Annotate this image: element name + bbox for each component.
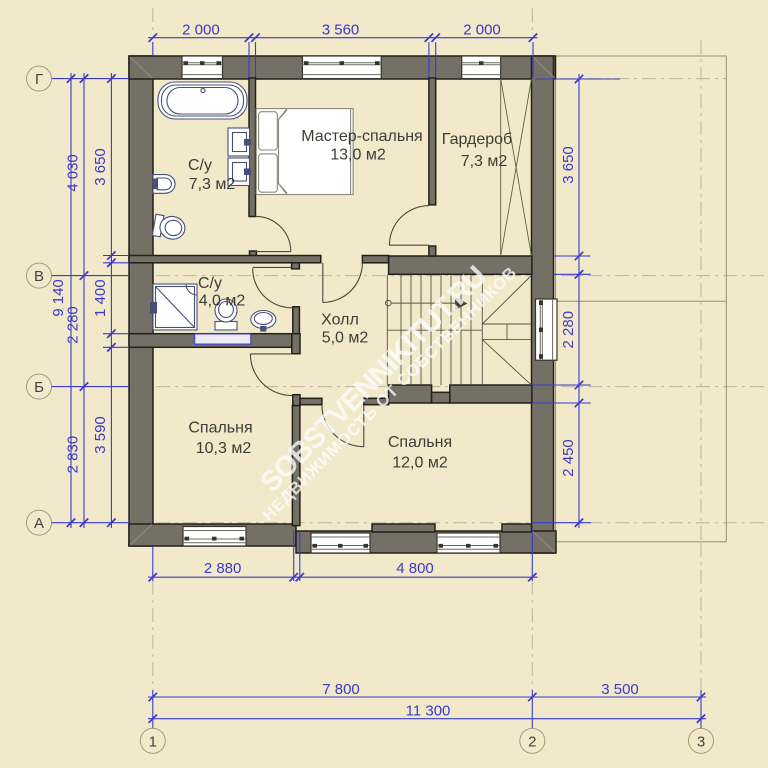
svg-text:1: 1 bbox=[149, 733, 157, 750]
svg-text:3 560: 3 560 bbox=[322, 22, 360, 39]
svg-text:Гардероб: Гардероб bbox=[442, 131, 512, 148]
svg-text:2 280: 2 280 bbox=[65, 306, 82, 344]
svg-text:2 000: 2 000 bbox=[463, 22, 501, 39]
svg-text:2 000: 2 000 bbox=[182, 22, 220, 39]
svg-text:4,0 м2: 4,0 м2 bbox=[199, 293, 246, 310]
svg-text:7,3 м2: 7,3 м2 bbox=[189, 176, 236, 193]
svg-text:13,0 м2: 13,0 м2 bbox=[330, 147, 386, 164]
svg-text:Холл: Холл bbox=[321, 312, 359, 329]
svg-text:3 650: 3 650 bbox=[92, 148, 109, 186]
svg-text:С/у: С/у bbox=[198, 275, 222, 292]
svg-text:Г: Г bbox=[35, 71, 43, 88]
svg-text:3 590: 3 590 bbox=[92, 416, 109, 454]
svg-text:3 500: 3 500 bbox=[601, 681, 639, 698]
svg-text:4 030: 4 030 bbox=[65, 154, 82, 192]
svg-text:2 830: 2 830 bbox=[65, 436, 82, 474]
svg-text:2 880: 2 880 bbox=[204, 560, 242, 577]
svg-text:5,0 м2: 5,0 м2 bbox=[322, 330, 369, 347]
svg-text:4 800: 4 800 bbox=[396, 560, 434, 577]
svg-text:7 800: 7 800 bbox=[322, 681, 360, 698]
svg-text:11 300: 11 300 bbox=[406, 703, 451, 720]
svg-text:10,3 м2: 10,3 м2 bbox=[196, 440, 252, 457]
svg-text:Спальня: Спальня bbox=[388, 434, 452, 451]
svg-text:12,0 м2: 12,0 м2 bbox=[392, 455, 448, 472]
svg-text:3 650: 3 650 bbox=[560, 146, 577, 184]
svg-text:2 450: 2 450 bbox=[560, 439, 577, 477]
svg-text:Спальня: Спальня bbox=[188, 420, 252, 437]
svg-text:В: В bbox=[34, 268, 44, 285]
svg-text:2 280: 2 280 bbox=[560, 311, 577, 349]
svg-text:Мастер-спальня: Мастер-спальня bbox=[301, 128, 422, 145]
svg-text:Б: Б bbox=[34, 379, 44, 396]
svg-text:2: 2 bbox=[528, 733, 536, 750]
svg-text:1 400: 1 400 bbox=[92, 279, 109, 317]
svg-text:7,3 м2: 7,3 м2 bbox=[461, 153, 508, 170]
svg-text:А: А bbox=[34, 515, 44, 532]
svg-text:3: 3 bbox=[697, 733, 705, 750]
svg-text:С/у: С/у bbox=[188, 157, 212, 174]
